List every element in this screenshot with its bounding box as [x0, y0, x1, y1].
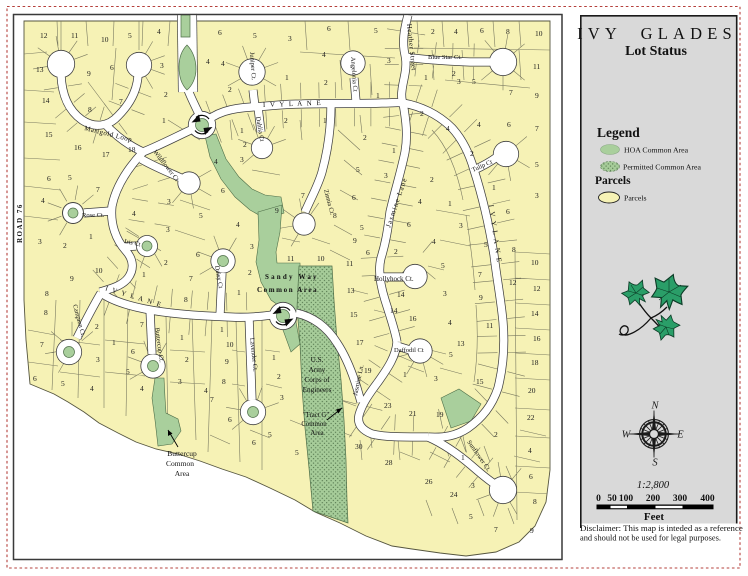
svg-text:7: 7 — [96, 185, 100, 194]
svg-text:11: 11 — [346, 259, 353, 268]
svg-text:1: 1 — [240, 126, 244, 135]
svg-text:4: 4 — [214, 157, 218, 166]
svg-text:3: 3 — [280, 393, 284, 402]
svg-text:10: 10 — [226, 340, 234, 349]
svg-text:12: 12 — [40, 31, 48, 40]
svg-text:0: 0 — [596, 494, 601, 504]
svg-text:11: 11 — [486, 321, 493, 330]
svg-text:and should not be used for leg: and should not be used for legal purpose… — [580, 534, 721, 543]
svg-text:3: 3 — [434, 374, 438, 383]
svg-text:3: 3 — [288, 34, 292, 43]
svg-text:6: 6 — [110, 63, 114, 72]
svg-text:10: 10 — [531, 258, 539, 267]
svg-text:6: 6 — [352, 193, 356, 202]
svg-text:5: 5 — [61, 379, 65, 388]
svg-text:8: 8 — [44, 308, 48, 317]
svg-text:8: 8 — [45, 289, 49, 298]
svg-text:Blue Star Ct.: Blue Star Ct. — [428, 54, 462, 61]
svg-text:7: 7 — [301, 191, 305, 200]
svg-text:13: 13 — [457, 339, 465, 348]
svg-text:4: 4 — [41, 196, 45, 205]
svg-text:15: 15 — [350, 310, 358, 319]
svg-text:1:2,800: 1:2,800 — [637, 480, 670, 491]
svg-text:11: 11 — [533, 62, 540, 71]
svg-text:ROAD 76: ROAD 76 — [16, 203, 24, 243]
svg-text:Sandy Way: Sandy Way — [265, 273, 319, 281]
svg-text:4: 4 — [140, 384, 144, 393]
svg-text:Buttercup: Buttercup — [167, 449, 197, 458]
svg-text:10: 10 — [101, 35, 109, 44]
svg-text:7: 7 — [509, 88, 513, 97]
svg-text:8: 8 — [88, 105, 92, 114]
svg-text:W: W — [622, 430, 632, 441]
svg-text:5: 5 — [449, 350, 453, 359]
svg-text:6: 6 — [407, 220, 411, 229]
svg-text:7: 7 — [478, 270, 482, 279]
svg-text:5: 5 — [253, 31, 257, 40]
svg-text:4: 4 — [454, 27, 458, 36]
svg-text:10: 10 — [317, 254, 325, 263]
svg-text:4: 4 — [221, 59, 225, 68]
svg-text:5: 5 — [128, 31, 132, 40]
svg-text:6: 6 — [221, 186, 225, 195]
svg-text:6: 6 — [33, 374, 37, 383]
svg-text:Lot Status: Lot Status — [625, 44, 687, 59]
svg-text:3: 3 — [471, 481, 475, 490]
svg-text:7: 7 — [494, 525, 498, 534]
svg-text:S: S — [652, 458, 658, 469]
svg-text:12: 12 — [533, 284, 541, 293]
svg-text:6: 6 — [47, 174, 51, 183]
svg-text:2: 2 — [363, 133, 367, 142]
svg-text:14: 14 — [42, 96, 50, 105]
svg-text:3: 3 — [459, 221, 463, 230]
svg-text:400: 400 — [700, 494, 715, 504]
svg-text:4: 4 — [418, 197, 422, 206]
svg-text:14: 14 — [390, 306, 398, 315]
svg-text:3: 3 — [384, 171, 388, 180]
svg-text:Army: Army — [309, 366, 326, 374]
svg-text:8: 8 — [533, 497, 537, 506]
svg-text:11: 11 — [71, 31, 78, 40]
svg-text:6: 6 — [480, 26, 484, 35]
svg-text:4: 4 — [90, 384, 94, 393]
svg-text:8: 8 — [184, 295, 188, 304]
svg-text:Corps of: Corps of — [305, 376, 331, 384]
svg-text:"Tract G": "Tract G" — [303, 412, 329, 419]
svg-text:2: 2 — [63, 241, 67, 250]
svg-text:3: 3 — [167, 197, 171, 206]
svg-text:3: 3 — [457, 77, 461, 86]
svg-text:21: 21 — [409, 409, 417, 418]
svg-text:20: 20 — [528, 386, 536, 395]
svg-text:9: 9 — [479, 293, 483, 302]
svg-text:6: 6 — [366, 248, 370, 257]
svg-text:IVY GLADES: IVY GLADES — [577, 24, 737, 43]
svg-text:4: 4 — [236, 220, 240, 229]
svg-text:3: 3 — [240, 155, 244, 164]
svg-text:6: 6 — [252, 438, 256, 447]
svg-text:1: 1 — [376, 91, 380, 100]
svg-text:3: 3 — [250, 242, 254, 251]
svg-text:17: 17 — [102, 150, 110, 159]
svg-text:16: 16 — [74, 143, 82, 152]
svg-text:3: 3 — [160, 61, 164, 70]
svg-text:Common: Common — [301, 421, 327, 428]
svg-text:5: 5 — [126, 367, 130, 376]
svg-text:3: 3 — [387, 56, 391, 65]
svg-text:3: 3 — [166, 225, 170, 234]
svg-text:6: 6 — [228, 415, 232, 424]
svg-text:2: 2 — [164, 258, 168, 267]
svg-text:1: 1 — [272, 353, 276, 362]
svg-text:8: 8 — [222, 377, 226, 386]
svg-text:5: 5 — [199, 211, 203, 220]
svg-text:E: E — [676, 430, 684, 441]
svg-text:U.S.: U.S. — [311, 356, 324, 364]
svg-text:1: 1 — [237, 288, 241, 297]
svg-text:13: 13 — [36, 65, 44, 74]
svg-text:Area: Area — [310, 430, 323, 437]
svg-text:8: 8 — [506, 27, 510, 36]
svg-text:1: 1 — [461, 453, 465, 462]
svg-text:9: 9 — [530, 526, 534, 535]
svg-text:9: 9 — [353, 236, 357, 245]
svg-text:Parcels: Parcels — [624, 194, 647, 203]
svg-text:3: 3 — [178, 377, 182, 386]
svg-text:5: 5 — [484, 240, 488, 249]
svg-text:4: 4 — [157, 27, 161, 36]
svg-text:Area: Area — [175, 469, 190, 478]
svg-text:3: 3 — [96, 355, 100, 364]
svg-text:2: 2 — [228, 85, 232, 94]
svg-text:4: 4 — [448, 318, 452, 327]
svg-text:8: 8 — [333, 211, 337, 220]
svg-text:8: 8 — [512, 245, 516, 254]
svg-text:5: 5 — [469, 512, 473, 521]
svg-text:6: 6 — [327, 24, 331, 33]
svg-text:Common Area: Common Area — [257, 286, 318, 294]
svg-text:Common: Common — [166, 459, 194, 468]
svg-text:3: 3 — [443, 289, 447, 298]
svg-text:1: 1 — [89, 232, 93, 241]
svg-text:15: 15 — [45, 130, 53, 139]
svg-text:5: 5 — [268, 430, 272, 439]
svg-text:4: 4 — [206, 57, 210, 66]
svg-text:Disclaimer: This map is inted: Disclaimer: This map is inteded as a ref… — [580, 523, 743, 533]
svg-text:28: 28 — [385, 458, 393, 467]
svg-text:5: 5 — [360, 223, 364, 232]
svg-text:4: 4 — [204, 386, 208, 395]
svg-text:1: 1 — [162, 116, 166, 125]
svg-text:17: 17 — [356, 338, 364, 347]
svg-text:Rose Ct.: Rose Ct. — [82, 212, 105, 219]
svg-text:11: 11 — [287, 254, 294, 263]
svg-text:6: 6 — [506, 207, 510, 216]
svg-text:2: 2 — [494, 430, 498, 439]
svg-text:2: 2 — [248, 268, 252, 277]
svg-text:Feet: Feet — [644, 511, 664, 523]
svg-text:9: 9 — [535, 91, 539, 100]
svg-text:7: 7 — [535, 124, 539, 133]
svg-text:2: 2 — [95, 322, 99, 331]
svg-text:15: 15 — [476, 377, 484, 386]
svg-text:2: 2 — [431, 27, 435, 36]
svg-text:1: 1 — [424, 73, 428, 82]
svg-text:23: 23 — [384, 401, 392, 410]
svg-text:9: 9 — [87, 69, 91, 78]
svg-text:6: 6 — [529, 472, 533, 481]
svg-text:14: 14 — [531, 309, 539, 318]
svg-text:1: 1 — [492, 183, 496, 192]
svg-text:6: 6 — [218, 28, 222, 37]
svg-text:9: 9 — [225, 357, 229, 366]
svg-text:7: 7 — [40, 340, 44, 349]
svg-text:Permitted Common Area: Permitted Common Area — [623, 163, 701, 172]
svg-text:7: 7 — [189, 274, 193, 283]
svg-text:5: 5 — [356, 165, 360, 174]
svg-text:2: 2 — [324, 78, 328, 87]
svg-text:N: N — [650, 401, 659, 412]
svg-text:2: 2 — [185, 355, 189, 364]
svg-text:2: 2 — [430, 175, 434, 184]
svg-text:14: 14 — [397, 290, 405, 299]
svg-text:5: 5 — [374, 26, 378, 35]
svg-text:7: 7 — [140, 320, 144, 329]
svg-text:22: 22 — [527, 413, 535, 422]
svg-text:16: 16 — [533, 334, 541, 343]
svg-text:24: 24 — [450, 490, 458, 499]
svg-text:2: 2 — [284, 116, 288, 125]
svg-text:6: 6 — [507, 120, 511, 129]
svg-text:1: 1 — [285, 73, 289, 82]
svg-text:5: 5 — [295, 448, 299, 457]
svg-text:6: 6 — [196, 250, 200, 259]
svg-text:16: 16 — [409, 314, 417, 323]
svg-text:9: 9 — [275, 206, 279, 215]
svg-text:1: 1 — [448, 199, 452, 208]
svg-text:3: 3 — [38, 237, 42, 246]
svg-text:Hollyhock Ct.: Hollyhock Ct. — [374, 275, 414, 283]
svg-text:2: 2 — [243, 140, 247, 149]
svg-text:9: 9 — [70, 274, 74, 283]
svg-text:200: 200 — [646, 494, 661, 504]
svg-text:26: 26 — [425, 477, 433, 486]
svg-text:1: 1 — [112, 338, 116, 347]
svg-text:1: 1 — [180, 333, 184, 342]
svg-text:1: 1 — [323, 116, 327, 125]
svg-text:4: 4 — [432, 237, 436, 246]
svg-text:5: 5 — [441, 261, 445, 270]
svg-text:10: 10 — [535, 29, 543, 38]
svg-text:Engineers: Engineers — [303, 386, 332, 394]
svg-text:5: 5 — [68, 173, 72, 182]
svg-text:18: 18 — [128, 145, 136, 154]
svg-text:5: 5 — [535, 160, 539, 169]
svg-text:13: 13 — [347, 286, 355, 295]
svg-text:2: 2 — [470, 149, 474, 158]
svg-text:19: 19 — [436, 410, 444, 419]
svg-text:2: 2 — [277, 372, 281, 381]
svg-text:2: 2 — [452, 69, 456, 78]
svg-text:4: 4 — [477, 120, 481, 129]
svg-text:1: 1 — [403, 370, 407, 379]
svg-text:Legend: Legend — [597, 125, 640, 140]
svg-text:300: 300 — [673, 494, 688, 504]
svg-text:Daffodil Ct: Daffodil Ct — [394, 347, 424, 354]
svg-text:4: 4 — [322, 50, 326, 59]
svg-text:19: 19 — [364, 366, 372, 375]
svg-text:1: 1 — [392, 146, 396, 155]
svg-text:1: 1 — [220, 325, 224, 334]
svg-text:4: 4 — [132, 209, 136, 218]
svg-text:50: 50 — [607, 494, 617, 504]
svg-text:4: 4 — [528, 446, 532, 455]
svg-text:Parcels: Parcels — [595, 175, 631, 187]
svg-text:18: 18 — [531, 358, 539, 367]
svg-text:100: 100 — [619, 494, 634, 504]
svg-text:5: 5 — [472, 77, 476, 86]
svg-text:3: 3 — [535, 191, 539, 200]
svg-text:10: 10 — [95, 266, 103, 275]
svg-text:30: 30 — [355, 442, 363, 451]
svg-text:2: 2 — [164, 90, 168, 99]
svg-text:HOA Common Area: HOA Common Area — [624, 146, 689, 155]
svg-text:7: 7 — [119, 97, 123, 106]
svg-text:7: 7 — [210, 395, 214, 404]
svg-text:1: 1 — [142, 270, 146, 279]
svg-text:2: 2 — [420, 109, 424, 118]
svg-text:6: 6 — [131, 347, 135, 356]
svg-text:2: 2 — [394, 247, 398, 256]
svg-text:4: 4 — [446, 124, 450, 133]
svg-text:12: 12 — [509, 278, 517, 287]
